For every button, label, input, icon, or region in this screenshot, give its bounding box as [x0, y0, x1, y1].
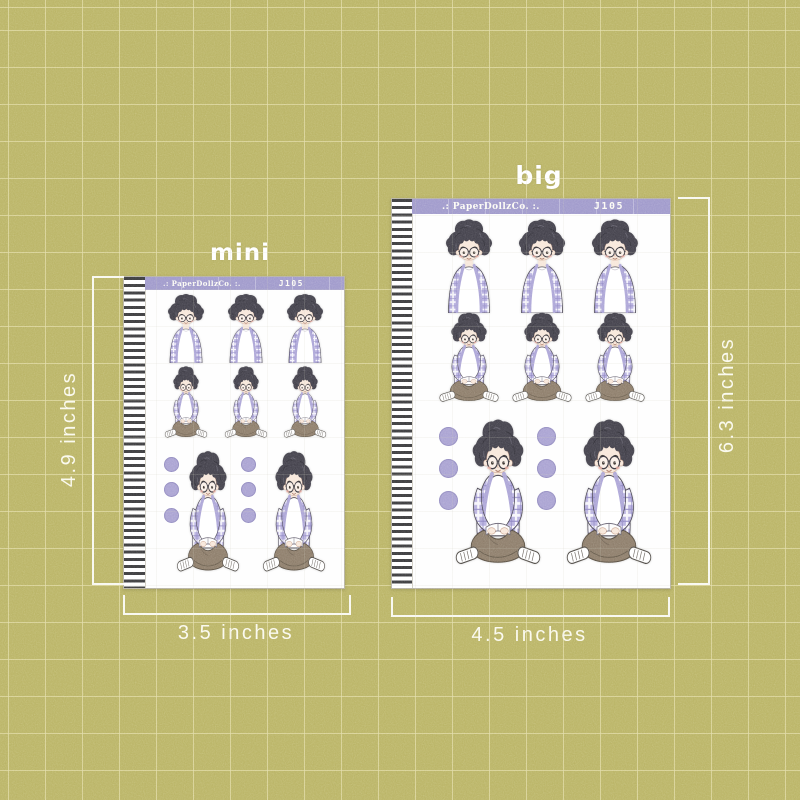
big-height-bracket	[678, 197, 710, 585]
boy-sitting-sticker-large	[164, 449, 252, 584]
big-width-bracket	[391, 597, 670, 617]
boy-bust-sticker	[437, 218, 501, 313]
boy-bust-sticker	[583, 218, 647, 313]
big-sticker-sheet: .: PaperDollzCo. :. J105	[391, 198, 671, 589]
brand-label: .: PaperDollzCo. :.	[163, 279, 241, 288]
boy-bust-sticker	[221, 293, 271, 363]
mini-sheet-header: .: PaperDollzCo. :. J105	[145, 277, 344, 290]
big-width-label: 4.5 inches	[391, 624, 668, 647]
boy-sitting-sticker	[427, 311, 511, 411]
mini-height-bracket	[92, 276, 124, 585]
binding-stripes-icon	[392, 199, 413, 588]
boy-sitting-sticker	[275, 365, 335, 445]
big-sheet-header: .: PaperDollzCo. :. J105	[412, 199, 670, 214]
mini-size-label: mini	[170, 240, 310, 266]
sheet-code-label: J105	[279, 279, 304, 288]
big-height-label: 6.3 inches	[716, 305, 740, 485]
boy-sitting-sticker	[573, 311, 657, 411]
product-photo-page: { "sheets": [ { "size_label": "mini", "b…	[0, 0, 800, 800]
mini-width-label: 3.5 inches	[123, 622, 349, 645]
binding-stripes-icon	[124, 277, 146, 588]
sheet-code-label: J105	[594, 201, 624, 212]
brand-label: .: PaperDollzCo. :.	[442, 202, 540, 212]
mini-height-label: 4.9 inches	[58, 348, 82, 510]
boy-sitting-sticker	[156, 365, 216, 445]
boy-sitting-sticker	[500, 311, 584, 411]
boy-sitting-sticker-large	[250, 449, 338, 584]
boy-bust-sticker	[510, 218, 574, 313]
big-size-label: big	[469, 161, 609, 190]
mini-sticker-sheet: .: PaperDollzCo. :. J105	[123, 276, 345, 589]
boy-sitting-sticker-large	[549, 417, 669, 579]
boy-bust-sticker	[280, 293, 330, 363]
boy-sitting-sticker	[216, 365, 276, 445]
mini-width-bracket	[123, 595, 351, 615]
boy-bust-sticker	[161, 293, 211, 363]
